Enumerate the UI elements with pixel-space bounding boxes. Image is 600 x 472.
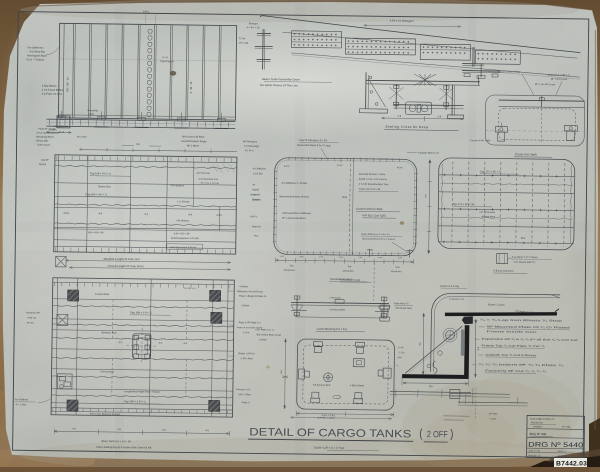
svg-text:Tank Cover: Tank Cover <box>37 144 50 147</box>
svg-text:But Of B.D Rear Cover: But Of B.D Rear Cover <box>257 333 282 336</box>
svg-text:Per Quick Chance Of This: Per Quick Chance Of This Line <box>260 83 299 88</box>
svg-text:4 Pt × 11 Stringers: 4 Pt × 11 Stringers <box>390 19 415 23</box>
svg-text:4.8 × 4.6 × 34: 4.8 × 4.6 × 34 <box>174 232 190 235</box>
svg-text:4 ea Rivet ¾ tʰᵏ 7 Rows: 4 ea Rivet ¾ tʰᵏ 7 Rows <box>512 256 539 259</box>
svg-text:For Stiffeners: For Stiffeners <box>27 46 44 49</box>
svg-text:4-4¼: 4-4¼ <box>63 211 70 215</box>
svg-text:4 Mtg Bllank: 4 Mtg Bllank <box>42 85 57 88</box>
svg-text:M.S.: M.S. <box>521 237 526 240</box>
svg-text:Frame ¾ Core: Frame ¾ Core <box>488 303 505 306</box>
svg-text:Harrington Rack: Harrington Rack <box>27 54 47 57</box>
svg-text:Old Mould Here: Old Mould Here <box>395 308 413 310</box>
svg-text:Risers To Be Carried By C: Risers To Be Carried By Count <box>262 77 300 81</box>
svg-text:Frames Butt: Frames Butt <box>95 293 109 296</box>
svg-text:Date 4·7·34: Date 4·7·34 <box>529 449 541 452</box>
svg-text:5 × 6: 5 × 6 <box>162 56 168 59</box>
svg-text:4.8×4.6×34: 4.8×4.6×34 <box>283 269 295 272</box>
svg-text:Top 171 × 5C × 34: Top 171 × 5C × 34 <box>452 202 474 206</box>
svg-text:Mean Tank 5·0 × 1·6 - 38: Mean Tank 5·0 × 1·6 - 38 <box>101 439 131 443</box>
svg-text:5·6½ × 2·6¼: 5·6½ × 2·6¼ <box>322 413 337 417</box>
svg-text:4 Pt Bottom: 4 Pt Bottom <box>176 219 189 222</box>
svg-text:at Ch Cut to Rear Of: at Ch Cut to Rear Of <box>36 132 59 135</box>
svg-text:Made Bʸ J.C.: Made Bʸ J.C. <box>529 455 542 457</box>
svg-text:4 Rᵇ Cover Between Frames: 4 Rᵇ Cover Between Frames <box>90 413 121 416</box>
svg-text:Plan Looking Up At & Under: Plan Looking Up At & Under Side Tank Of … <box>96 445 151 450</box>
svg-text:Ship Nº 445: Ship Nº 445 <box>529 432 546 436</box>
svg-text:¾ Armour Bolt: ¾ Armour Bolt <box>329 308 345 311</box>
svg-text:Frame Inside Con: Frame Inside Con <box>487 329 538 334</box>
svg-text:4.6+8: 4.6+8 <box>58 131 65 134</box>
svg-text:Mʳ ¾ Pt Cover: Mʳ ¾ Pt Cover <box>551 78 568 81</box>
svg-text:3-6: 3-6 <box>136 143 140 146</box>
svg-text:4 × ¾ Flat: 4 × ¾ Flat <box>16 403 27 406</box>
svg-text:4-4: 4-4 <box>98 212 102 215</box>
svg-text:1 Rod Cap: 1 Rod Cap <box>329 297 341 299</box>
svg-text:DRG Nº 5440: DRG Nº 5440 <box>528 442 583 450</box>
svg-text:1·6: 1·6 <box>397 115 401 118</box>
svg-text:¾ Cover ¾ ¾: ¾ Cover ¾ ¾ <box>449 298 465 301</box>
svg-text:4-4: 4-4 <box>188 214 192 217</box>
svg-text:14.8×4.6×¾: 14.8×4.6×¾ <box>390 270 402 273</box>
svg-text:Scale ¾ Bᵗ × 3 = 1 Foot: Scale ¾ Bᵗ × 3 = 1 Foot <box>314 445 344 449</box>
svg-text:Cap 126 × 1·6 × ¾: Cap 126 × 1·6 × ¾ <box>124 399 147 403</box>
svg-text:4.5 Thornton: 4.5 Thornton <box>197 172 211 175</box>
svg-text:Seating Cross Br Deep: Seating Cross Br Deep <box>385 125 428 130</box>
svg-text:¾ tʷ Rivets 348 T.C.: ¾ tʷ Rivets 348 T.C. <box>514 261 536 264</box>
svg-text:B7442.03: B7442.03 <box>556 461 587 467</box>
svg-text:¾: ¾ <box>396 364 398 367</box>
svg-text:Ambo Stiffeners 4 × 38 × 1¾: Ambo Stiffeners 4 × 38 × 1¾ <box>361 233 390 236</box>
svg-text:¾ Rivet: ¾ Rivet <box>241 304 249 307</box>
svg-text:Plate Here To: Plate Here To <box>394 302 409 305</box>
svg-text:Lower Bracing 5·0 × 5·6: Lower Bracing 5·0 × 5·6 <box>317 327 348 331</box>
svg-text:Timber Rail: Timber Rail <box>98 185 111 188</box>
svg-text:Cap 158 × 1·6 × ¾: Cap 158 × 1·6 × ¾ <box>130 310 153 314</box>
svg-text:Amidt ¾ Cut ¾ Ch Covers: Amidt ¾ Cut ¾ Ch Covers <box>359 178 388 181</box>
svg-text:4-4: 4-4 <box>144 213 148 216</box>
svg-text:For Stiffener: For Stiffener <box>15 398 29 401</box>
svg-text:Plate ¾ Rᵈ Plate C ¾: Plate ¾ Rᵈ Plate C ¾ <box>239 321 262 324</box>
svg-text:Glasgow: Glasgow <box>533 426 542 428</box>
svg-text:Pointhouse: Pointhouse <box>531 421 544 424</box>
svg-text:1 Cut: 1 Cut <box>337 164 343 167</box>
svg-text:Mounting Rib 8: Mounting Rib 8 <box>36 136 54 139</box>
svg-text:4 Pt Bottom: 4 Pt Bottom <box>171 184 184 187</box>
svg-text:Tomson ¾×¾: Tomson ¾×¾ <box>236 388 252 391</box>
svg-text:4 × 8½ × 38: 4 × 8½ × 38 <box>247 25 260 29</box>
svg-text:4 Ch Rnd Bar: 4 Ch Rnd Bar <box>29 50 45 53</box>
svg-text:Cap: Cap <box>396 267 401 269</box>
svg-text:4 Bolt Clamp: 4 Bolt Clamp <box>350 384 365 387</box>
svg-text:Tank Expansion 5.05×36: Tank Expansion 5.05×36 <box>170 246 197 249</box>
svg-text:Scale ¾ʺ: Scale ¾ʺ <box>558 450 567 453</box>
svg-text:Bracket 4 × 36 × ¾: Bracket 4 × 36 × ¾ <box>548 74 571 77</box>
svg-text:8·6: 8·6 <box>429 385 433 388</box>
svg-text:4 Lvl - T Datum: 4 Lvl - T Datum <box>26 58 45 61</box>
svg-text:2 OFF: 2 OFF <box>427 429 448 439</box>
svg-text:1 Pt ¾ M: 1 Pt ¾ M <box>238 42 248 45</box>
svg-text:L+L Rivets: L+L Rivets <box>177 200 190 203</box>
svg-text:3 × Bᵈ: 3 × Bᵈ <box>397 346 403 349</box>
svg-text:5·8 Armour Bolt: 5·8 Armour Bolt <box>313 384 331 387</box>
svg-text:4-4¼: 4-4¼ <box>216 213 223 217</box>
svg-text:¾ Cut: ¾ Cut <box>490 417 497 420</box>
svg-text:4.6+18 Doubler Angle: 4.6+18 Doubler Angle <box>181 140 207 143</box>
svg-text:Outside Top ¾ Cut 8 Rivets: Outside Top ¾ Cut 8 Rivets <box>485 353 537 358</box>
svg-text:Plate tw: Plate tw <box>252 225 261 228</box>
svg-text:14.8×4.6×¾: 14.8×4.6×¾ <box>342 270 354 273</box>
svg-text:4.8 × 4.6 × 34: 4.8 × 4.6 × 34 <box>88 231 104 234</box>
svg-text:Elevation At Seat: Elevation At Seat <box>330 277 351 281</box>
svg-text:Top: Top <box>290 265 295 267</box>
svg-text:Moulded Length Of Tank 16·: Moulded Length Of Tank 16·0 <box>104 257 141 261</box>
svg-text:Elevtn Rib: Elevtn Rib <box>36 140 48 143</box>
svg-text:4 Rᵈ: 4 Rᵈ <box>397 356 401 359</box>
svg-text:Cap 171 × 4C × ¾: Cap 171 × 4C × ¾ <box>480 169 502 173</box>
svg-text:Top: Top <box>348 266 353 268</box>
svg-text:Plate Mº 123.56: Plate Mº 123.56 <box>38 128 56 131</box>
svg-text:Counter Rivet ¾ tʷ: Counter Rivet ¾ tʷ <box>418 152 440 155</box>
svg-text:Anchored Brass Stiffeners: Anchored Brass Stiffeners <box>282 212 312 215</box>
svg-text:5·8 Iron Cut Turn: 5·8 Iron Cut Turn <box>493 270 513 273</box>
svg-text:¾ B+ Plate ¾ C ¾: ¾ B+ Plate ¾ C ¾ <box>255 328 275 331</box>
svg-text:4 Rᵈ ¾: 4 Rᵈ ¾ <box>250 215 258 218</box>
svg-text:Mounted Runner ¾ Rear: Mounted Runner ¾ Rear <box>359 173 386 176</box>
svg-text:3-6¾: 3-6¾ <box>143 9 150 13</box>
svg-text:Cap Mº: Cap Mº <box>41 159 49 162</box>
svg-text:DETAIL OF CARGO TANKS: DETAIL OF CARGO TANKS <box>249 426 411 440</box>
svg-text:Horizontal Rivet 8 Pᵗ w 7 Anch: Horizontal Rivet 8 Pᵗ w 7 Anchor <box>362 237 396 240</box>
svg-text:Mᵏ ¾ 4½ Mᵏ Cover: Mᵏ ¾ 4½ Mᵏ Cover <box>535 82 556 86</box>
svg-text:¾ Ch Bar: ¾ Ch Bar <box>253 172 263 175</box>
svg-text:Tomson Butt: Tomson Butt <box>100 370 114 373</box>
svg-text:4 · 48 · 14: 4 · 48 · 14 <box>189 81 193 93</box>
svg-text:Covers 4-4½ × Mᵗᵈ: Covers 4-4½ × Mᵗᵈ <box>470 138 491 142</box>
svg-text:¾ Rᵈ¾ Row: ¾ Rᵈ¾ Row <box>240 357 253 360</box>
svg-text:Formerly Mᵏ Cut ¾ ¾ ¾ ¾: Formerly Mᵏ Cut ¾ ¾ ¾ ¾ <box>485 369 548 374</box>
svg-text:Longitudinal Angle Runs 7 G: Longitudinal Angle Runs 7 Glass <box>124 390 161 393</box>
svg-text:Frame Do Mᵏ: Frame Do Mᵏ <box>26 311 40 314</box>
svg-text:1·6: 1·6 <box>437 115 441 118</box>
svg-text:4½ Stiffeners ¾ Rᵈ Bar: 4½ Stiffeners ¾ Rᵈ Bar <box>282 181 308 185</box>
svg-text:Mᵏ 1 Riser: Mᵏ 1 Riser <box>187 144 199 147</box>
svg-text:Frame Top ¾ Cut Plate ¾ Cu: Frame Top ¾ Cut Plate ¾ Cut ¾ <box>481 343 545 348</box>
svg-text:Mounted: Mounted <box>250 193 260 196</box>
svg-text:¾ Ton: ¾ Ton <box>243 331 250 334</box>
svg-text:¾ Cut: ¾ Cut <box>398 351 404 354</box>
svg-text:Covers Of Iron Side: Covers Of Iron Side <box>356 207 383 211</box>
svg-text:¾ Cut: ¾ Cut <box>238 37 245 40</box>
svg-text:¾ Plate: ¾ Plate <box>259 338 268 341</box>
svg-text:Cap Of Stringers 5 × 8½: Cap Of Stringers 5 × 8½ <box>299 138 327 142</box>
svg-text:Top 118 × 4½ × ¾: Top 118 × 4½ × ¾ <box>90 171 112 175</box>
svg-text:M+ Do: M+ Do <box>27 322 35 324</box>
svg-text:Cap 304 × 4C × ¾: Cap 304 × 4C × ¾ <box>85 192 107 196</box>
svg-text:Plate ¾: Plate ¾ <box>242 401 251 404</box>
svg-text:M.S.: M.S. <box>342 195 348 199</box>
svg-text:Bracket: Bracket <box>252 198 261 201</box>
svg-text:Girder ¾ Rᵈ Do: Girder ¾ Rᵈ Do <box>238 352 255 355</box>
svg-text:4 Girder: 4 Girder <box>239 285 248 288</box>
svg-text:Depth: Depth <box>253 188 260 191</box>
svg-text:Horizontal Rivet 8 tw 7 Long: Horizontal Rivet 8 tw 7 Long <box>297 144 331 147</box>
svg-text:Mᵏ ¾ Horizontal Rivet: Mᵏ ¾ Horizontal Rivet <box>282 217 306 220</box>
svg-text:4 Ch Faced Br Bar: 4 Ch Faced Br Bar <box>42 89 64 92</box>
svg-text:To Plate Edge: To Plate Edge <box>244 145 260 148</box>
svg-text:Traced Wᵏ: Traced Wᵏ <box>558 455 568 458</box>
svg-text:¾ Rᵈ ¾ Row: ¾ Rᵈ ¾ Row <box>238 393 251 396</box>
svg-text:Track 4·B × 8·4 × 38: Track 4·B × 8·4 × 38 <box>359 188 381 191</box>
svg-text:Cover For Tank: Cover For Tank <box>515 152 537 156</box>
svg-text:Overall Length Of Tank 15·: Overall Length Of Tank 15·5½ <box>107 264 144 268</box>
svg-text:Tank Plated: Tank Plated <box>160 60 174 63</box>
svg-text:Their Do: Their Do <box>27 317 37 319</box>
svg-text:Mᵗᵍ Covers At Rear: Mᵗᵍ Covers At Rear <box>182 134 204 138</box>
svg-text:4 & Plate Ch 62.8: 4 & Plate Ch 62.8 <box>42 93 63 96</box>
svg-text:2 Ch Brackets 4 tw: 2 Ch Brackets 4 tw <box>199 178 219 181</box>
svg-text:Between Butt: Between Butt <box>102 331 117 334</box>
svg-text:Rᵉᵏ 4734: Rᵉᵏ 4734 <box>562 426 571 429</box>
svg-text:4 Cut: 4 Cut <box>397 166 403 169</box>
svg-text:Frame 6·0 Long: Frame 6·0 Long <box>440 285 459 288</box>
svg-text:Mounting: Mounting <box>88 109 99 112</box>
svg-text:Loose 3-4½ × 1·6A: Loose 3-4½ × 1·6A <box>498 70 520 74</box>
svg-text:4 Pᵗ B.D. Cut ¾(S): 4 Pᵗ B.D. Cut ¾(S) <box>362 213 386 217</box>
svg-text:M.S.: M.S. <box>254 235 259 237</box>
svg-text:163.56: 163.56 <box>39 164 47 166</box>
svg-text:4 Cut: 4 Cut <box>284 165 290 168</box>
svg-text:Viewed Plate: Viewed Plate <box>481 215 496 218</box>
svg-text:Mounted Brackets Of Size: Mounted Brackets Of Size <box>279 195 309 198</box>
svg-text:Bolt: Bolt <box>89 113 94 116</box>
svg-text:4 ¾ 8 Pt Movable Rear Trim: 4 ¾ 8 Pt Movable Rear Trim <box>359 183 389 186</box>
svg-text:Stringer: Stringer <box>249 22 258 25</box>
svg-text:Plate ¾ Bright At Side To: Plate ¾ Bright At Side To <box>239 295 267 298</box>
svg-text:4.8 – 88 · 14: 4.8 – 88 · 14 <box>65 77 69 92</box>
svg-text:Stiffeners 4×¾×8 Pt Cut: Stiffeners 4×¾×8 Pt Cut <box>237 290 263 293</box>
